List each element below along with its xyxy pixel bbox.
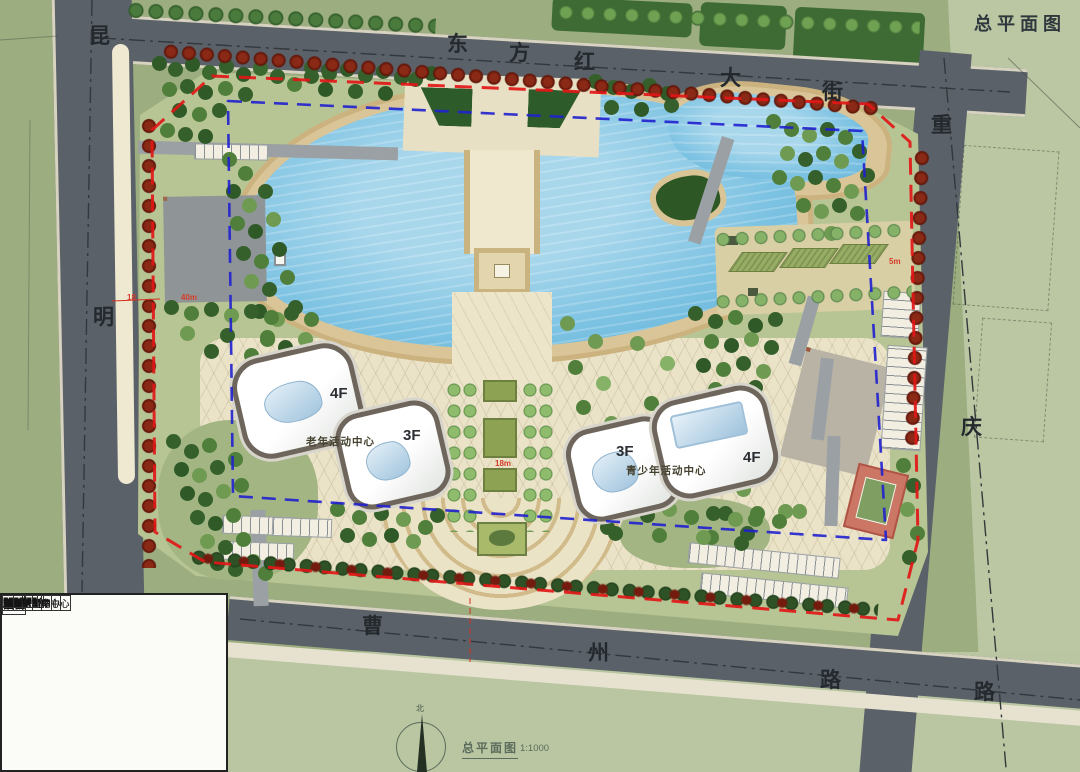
- tree-cluster: [304, 60, 319, 75]
- building-name: 青少年活动中心: [626, 463, 707, 478]
- street-name-char: 东: [447, 34, 468, 55]
- street-name-char: 重: [931, 115, 952, 136]
- pavilion: [748, 288, 758, 296]
- tree-cluster: [166, 434, 181, 449]
- garden-panel: [551, 0, 693, 38]
- dimension-label: 18: [127, 294, 136, 302]
- page-title: 总平面图: [974, 10, 1066, 36]
- axis-bridge: [464, 150, 540, 254]
- planting-square: [483, 380, 517, 402]
- floor-label: 3F: [616, 444, 634, 459]
- area-table: 项目 面积 单位 总建筑面积31563.14㎡ 青少年活动中心14553.74㎡…: [0, 593, 228, 772]
- north-label: 北: [416, 703, 424, 714]
- sketch-outline: [974, 318, 1052, 443]
- street-name-char: 曹: [362, 616, 383, 637]
- garden-pavilion: [274, 254, 286, 266]
- planting-square: [483, 418, 517, 458]
- street-name-char: 昆: [89, 26, 110, 47]
- tree-cluster: [588, 74, 603, 89]
- parking-row: [222, 541, 295, 563]
- tree-cluster: [164, 300, 179, 315]
- street-name-char: 方: [509, 43, 530, 64]
- plan-caption-scale: 1:1000: [520, 743, 549, 754]
- street-name-char: 明: [93, 307, 114, 328]
- street-name-char: 州: [588, 643, 609, 664]
- garden-panel: [699, 2, 787, 50]
- parking-row: [272, 517, 333, 538]
- street-name-char: 大: [720, 68, 741, 89]
- tree-cluster: [896, 458, 911, 473]
- dimension-label: 18m: [495, 460, 511, 468]
- parking-row: [880, 291, 921, 340]
- tree-cluster: [766, 114, 781, 129]
- street-name-char: 路: [974, 682, 995, 703]
- parking-row: [880, 345, 927, 452]
- site-plan: 东 方 红 大 街 昆 明 重 庆 路 曹 州 路 4F 3F 老年活动中心 3…: [0, 0, 1080, 772]
- pavilion: [726, 236, 738, 245]
- street-name-char: 红: [574, 52, 595, 73]
- north-entrance-plaza: [403, 73, 602, 158]
- axis-paving: [452, 292, 552, 392]
- street-name-char: 庆: [961, 417, 982, 438]
- floor-label: 4F: [743, 450, 761, 465]
- plan-caption-title: 总平面图: [462, 739, 518, 759]
- floor-label: 4F: [330, 386, 348, 401]
- street-name-char: 街: [822, 82, 843, 103]
- tree-cluster: [152, 56, 167, 71]
- sketch-outline: [953, 145, 1060, 311]
- tree-cluster: [222, 152, 237, 167]
- tree-cluster: [688, 306, 703, 321]
- cell-unit: ㎡: [2, 595, 14, 611]
- dimension-label: 40m: [181, 294, 197, 302]
- tree-cluster: [560, 316, 575, 331]
- planting-square: [483, 468, 517, 492]
- building-name: 老年活动中心: [306, 434, 375, 449]
- tree-cluster: [330, 502, 345, 517]
- dimension-label: 5m: [889, 258, 901, 266]
- sports-courts: [163, 195, 267, 303]
- central-square-feature: [494, 264, 510, 278]
- floor-label: 3F: [403, 428, 421, 443]
- street-name-char: 路: [820, 670, 841, 691]
